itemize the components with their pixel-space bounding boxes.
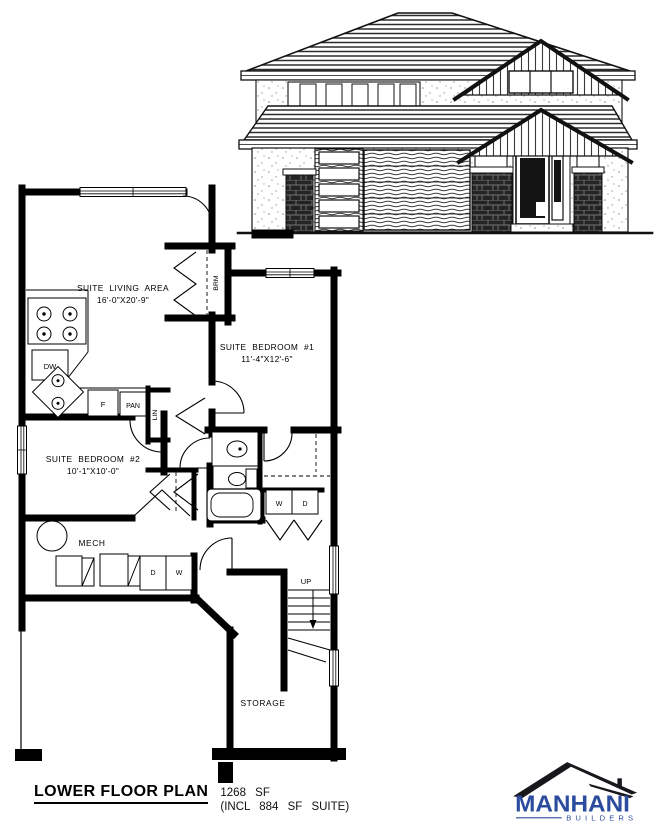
- washer-label: W: [276, 501, 283, 508]
- suite-laundry: W D: [266, 490, 318, 514]
- drawing-sheet: DW F PAN: [0, 0, 656, 827]
- dryer-label: D: [302, 501, 307, 508]
- plan-suite-note: (INCL 884 SF SUITE): [220, 800, 349, 814]
- stove-icon: [28, 298, 86, 344]
- living-room-label: SUITE LIVING AREA: [77, 283, 169, 293]
- kitchen: DW F PAN: [26, 290, 146, 417]
- bedroom2-window: [18, 426, 27, 474]
- gable-window: [509, 71, 573, 93]
- living-room-dims: 16'-0"X20'-9": [97, 295, 149, 305]
- suite-landing-door: [183, 196, 212, 225]
- floor-plan: DW F PAN: [15, 188, 340, 784]
- storage-window: [330, 650, 339, 686]
- plan-title: LOWER FLOOR PLAN: [34, 784, 208, 804]
- entry-door: [511, 148, 573, 232]
- broom-closet-bifold: [174, 252, 196, 316]
- broom-label: BRM: [213, 275, 220, 290]
- closet-shelving: [140, 250, 330, 572]
- water-heater-icon: [37, 521, 67, 551]
- stair-winders: [288, 638, 330, 662]
- living-window: [80, 188, 186, 197]
- bathtub-icon: [207, 489, 261, 521]
- main-floor-wall: [252, 148, 628, 232]
- entry-step: [511, 224, 573, 232]
- bedroom1-window: [266, 269, 314, 278]
- plan-windows: [18, 188, 339, 687]
- stair-treads: [288, 590, 330, 630]
- garage-door: [364, 150, 470, 230]
- mech-label: MECH: [78, 538, 105, 548]
- stair-window: [330, 546, 339, 594]
- pantry: PAN: [120, 392, 146, 416]
- fridge-label: F: [101, 400, 106, 409]
- stone-pillar-left: [283, 169, 316, 232]
- suite-entry-door: [200, 538, 232, 570]
- up-label: UP: [301, 577, 311, 586]
- drawing-canvas: DW F PAN: [0, 0, 656, 827]
- pantry-label: PAN: [126, 403, 140, 410]
- toilet-icon: [229, 469, 258, 488]
- stone-pillar-middle: [470, 150, 514, 232]
- stone-pillar-right: [572, 150, 604, 232]
- bedroom1-closet-door: [264, 433, 292, 461]
- mech-laundry: D W: [140, 556, 192, 590]
- title-block: LOWER FLOOR PLAN 1268 SF (INCL 884 SF SU…: [34, 784, 349, 815]
- mech-dryer-label: D: [150, 570, 155, 577]
- mech-room: D W: [37, 521, 192, 590]
- plan-area-info: 1268 SF (INCL 884 SF SUITE): [220, 784, 349, 815]
- logo-tagline: BUILDERS: [566, 814, 636, 823]
- builder-logo: MANHANI BUILDERS: [502, 755, 652, 825]
- laundry-closet-bifold: [266, 520, 322, 540]
- stair-arrowhead: [310, 620, 317, 629]
- stacked-windows: [319, 152, 359, 228]
- bathroom: [207, 432, 261, 521]
- plan-area: 1268 SF: [220, 786, 349, 800]
- house-elevation: [238, 13, 652, 233]
- bedroom1-dims: 11'-4"X12'-6": [241, 354, 293, 364]
- bedroom1-door: [212, 381, 244, 413]
- bedroom1-label: SUITE BEDROOM #1: [220, 342, 314, 352]
- fridge: F: [88, 390, 118, 416]
- stairs: UP: [288, 577, 330, 662]
- bedroom2-label: SUITE BEDROOM #2: [46, 454, 140, 464]
- linen-door: [176, 398, 205, 434]
- bathroom-door: [180, 438, 210, 468]
- mech-washer-label: W: [176, 570, 183, 577]
- linen-label: LIN: [152, 410, 159, 421]
- bedroom2-dims: 10'-1"X10'-0": [67, 466, 119, 476]
- builder-logo-art: MANHANI BUILDERS: [502, 755, 652, 825]
- storage-label: STORAGE: [241, 698, 286, 708]
- vanity-sink-icon: [212, 432, 258, 466]
- furnace-icons: [56, 554, 140, 586]
